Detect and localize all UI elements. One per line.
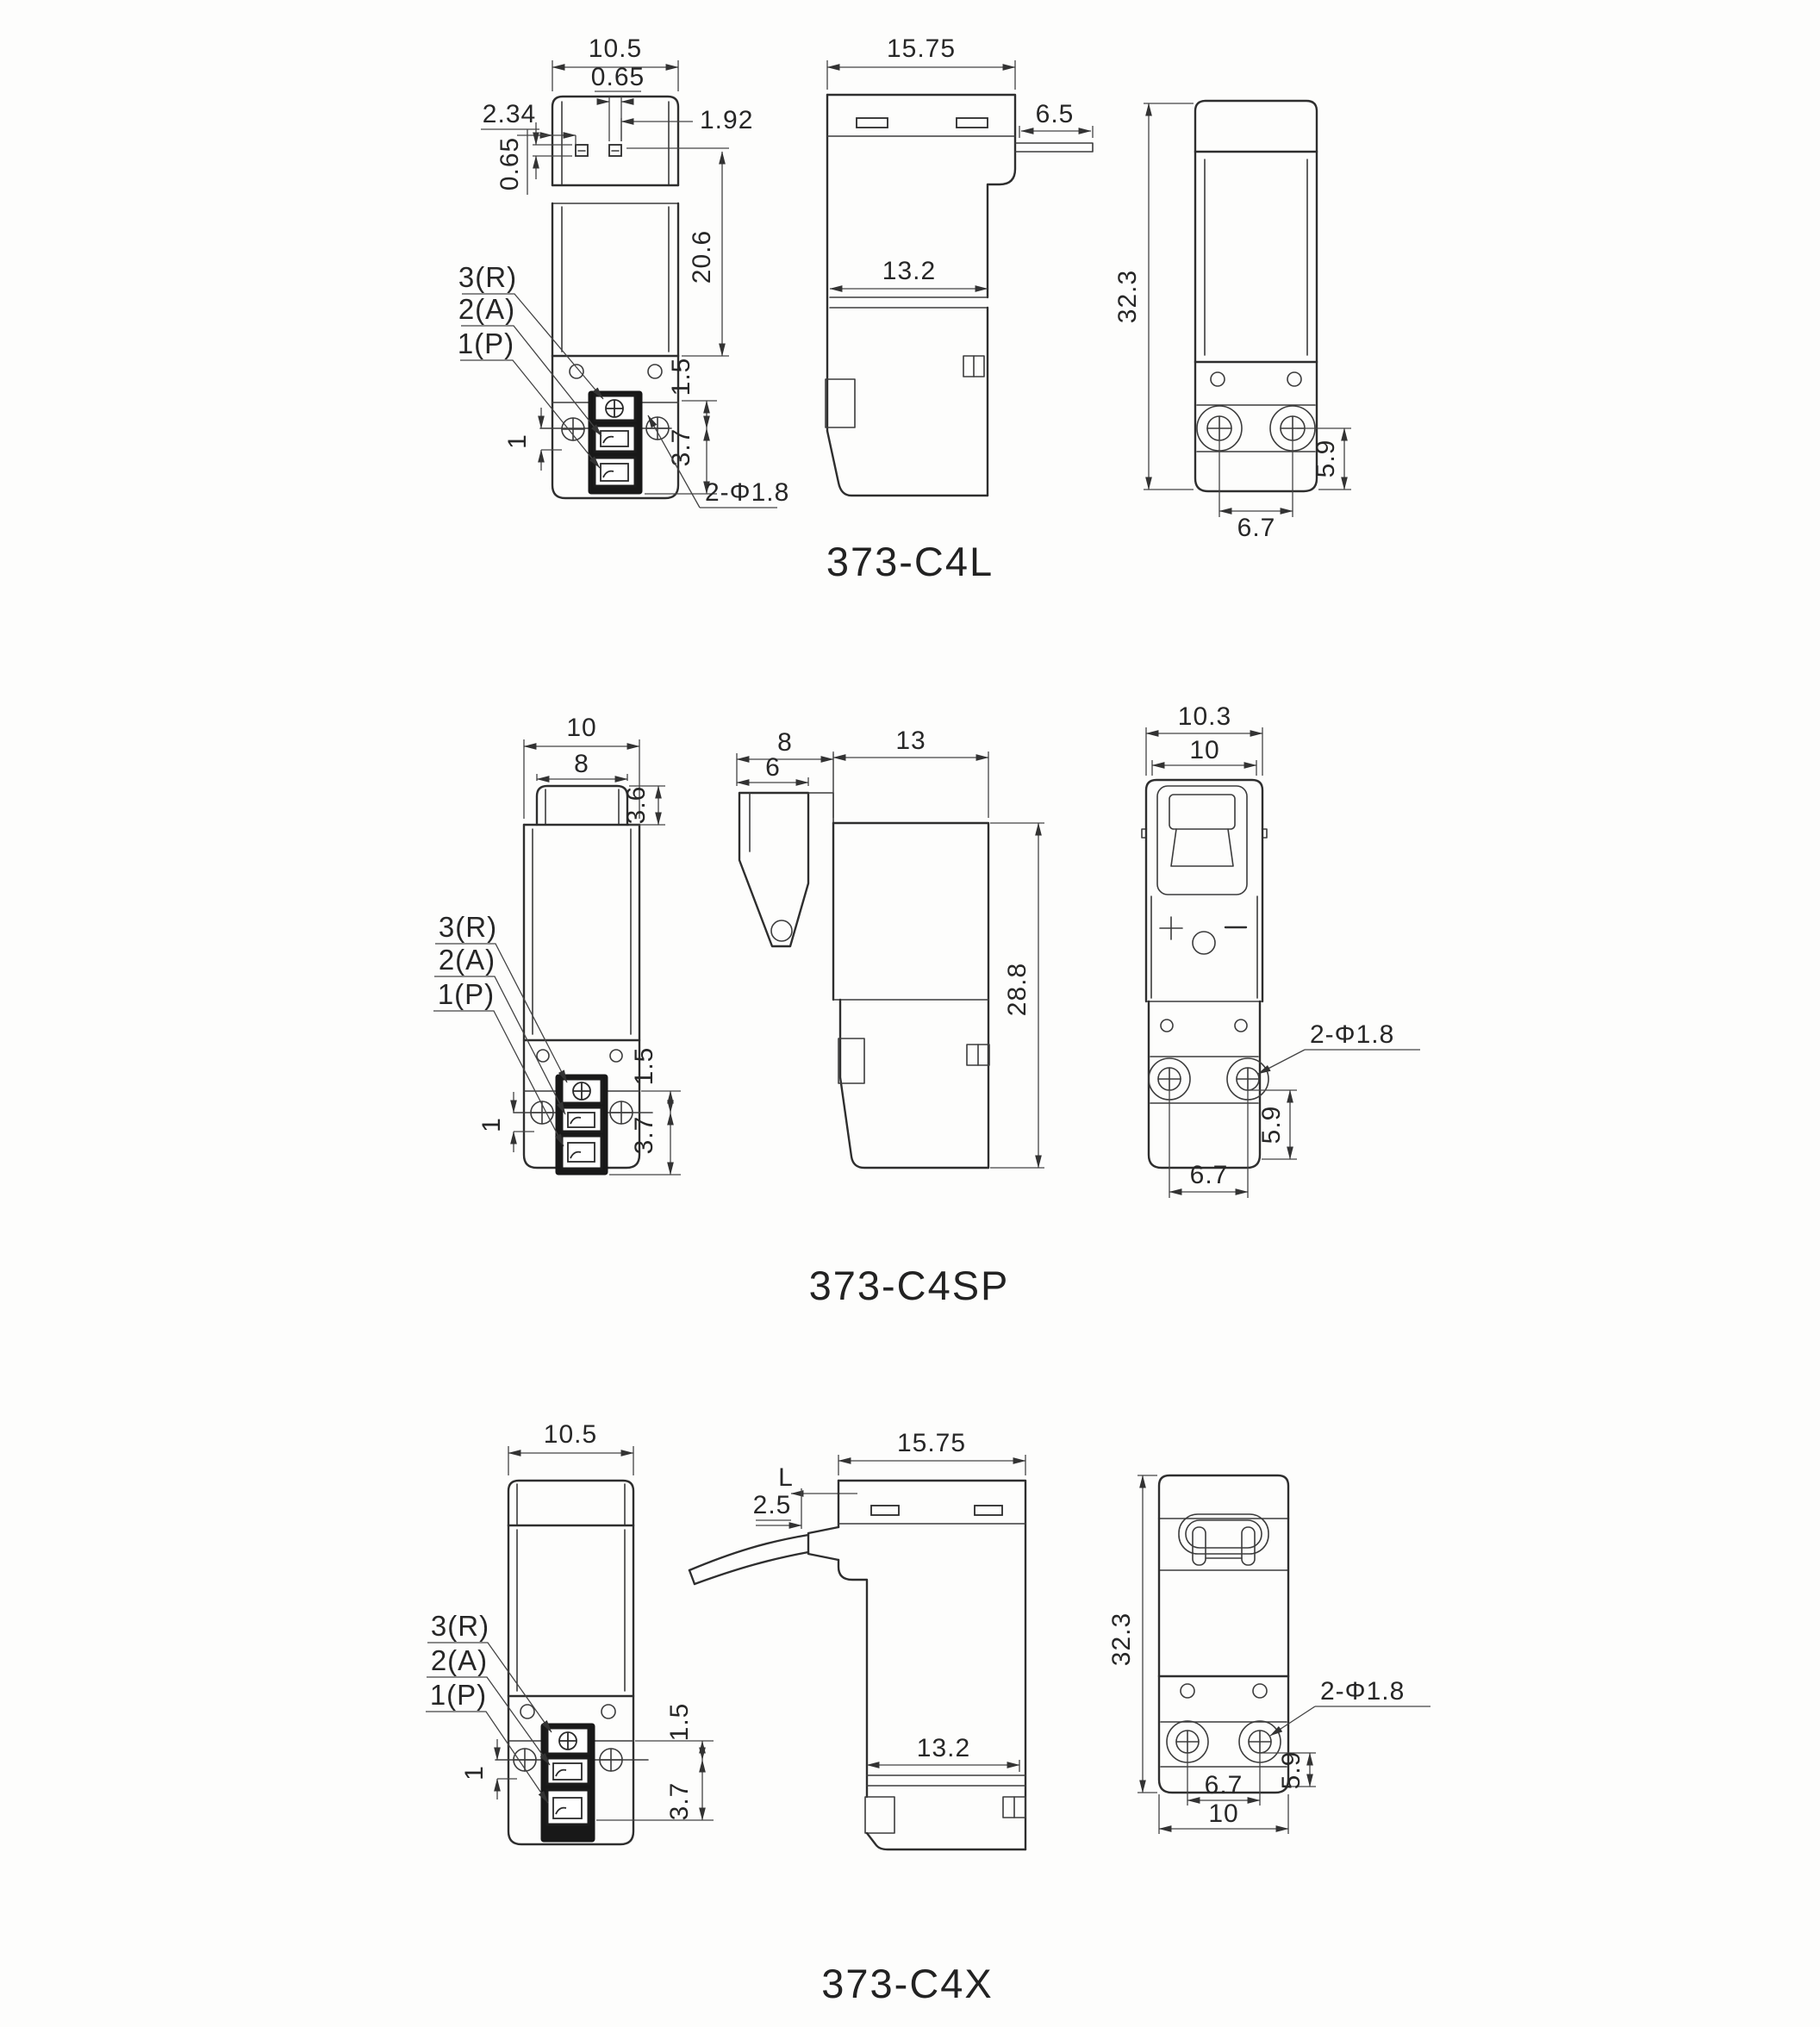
c4x-rear-hole-right bbox=[1249, 1731, 1271, 1753]
dim-c4x-hole-y: 5.9 bbox=[1277, 1751, 1306, 1790]
c4x-mount-hole-symbol-right bbox=[600, 1749, 622, 1771]
dim-c4x-cable-length: L bbox=[778, 1463, 794, 1492]
dim-c4x-block-height: 3.7 bbox=[665, 1782, 694, 1821]
dim-c4sp-cap-width: 8 bbox=[574, 750, 589, 778]
c4sp-rear-hole-right bbox=[1237, 1068, 1259, 1090]
dim-c4x-lower-width: 13.2 bbox=[917, 1734, 970, 1762]
dim-c4l-tab-length: 6.5 bbox=[1036, 100, 1075, 128]
figure-373-c4l: 10.5 0.65 2.34 1.92 0.65 20.6 1.5 bbox=[458, 34, 1351, 584]
dim-c4l-front-width: 10.5 bbox=[589, 34, 642, 63]
dim-c4sp-ear-offset: 1 bbox=[477, 1117, 506, 1132]
note-c4l-holes: 2-Φ1.8 bbox=[705, 478, 789, 507]
c4l-front-view: 10.5 0.65 2.34 1.92 0.65 20.6 1.5 bbox=[458, 34, 790, 508]
dim-c4x-front-width: 10.5 bbox=[544, 1420, 597, 1449]
dim-c4l-port-width: 0.65 bbox=[591, 63, 645, 91]
port-label-1p: 1(P) bbox=[438, 978, 495, 1010]
dim-c4sp-cap-height: 3.6 bbox=[622, 786, 651, 825]
figure-373-c4sp: 10 8 3.6 bbox=[433, 702, 1420, 1308]
dim-c4l-port-right-offset: 1.92 bbox=[700, 106, 753, 134]
dim-c4x-cable-offset: 2.5 bbox=[753, 1491, 792, 1519]
dim-c4l-side-width: 15.75 bbox=[887, 34, 956, 63]
figure-title-c4sp: 373-C4SP bbox=[809, 1263, 1010, 1308]
dim-c4l-port-left-offset: 2.34 bbox=[483, 100, 536, 128]
dim-c4l-hole-span: 6.7 bbox=[1237, 514, 1276, 542]
c4sp-indicator-symbols bbox=[1160, 917, 1246, 954]
dim-c4sp-cap-face: 6 bbox=[765, 753, 781, 782]
dim-c4l-body-height: 20.6 bbox=[688, 230, 716, 284]
dim-c4l-lower-width: 13.2 bbox=[882, 257, 936, 285]
c4x-front-view: 10.5 bbox=[426, 1420, 714, 1844]
port-label-2a: 2(A) bbox=[431, 1644, 488, 1676]
figure-title-c4x: 373-C4X bbox=[821, 1961, 994, 2006]
port-label-3r: 3(R) bbox=[439, 911, 497, 943]
dim-c4x-height: 32.3 bbox=[1107, 1612, 1136, 1666]
c4sp-rear-view: 10.3 10 bbox=[1142, 702, 1420, 1198]
c4x-side-view: 15.75 L 2.5 13.2 bbox=[689, 1429, 1025, 1849]
figure-title-c4l: 373-C4L bbox=[826, 539, 994, 584]
dim-c4sp-front-width: 10 bbox=[566, 714, 596, 742]
dim-c4l-ear-offset: 1 bbox=[503, 433, 532, 449]
dim-c4l-port-top-offset: 0.65 bbox=[496, 137, 524, 190]
c4sp-latch bbox=[1157, 786, 1247, 895]
c4l-mount-hole-symbol-left bbox=[562, 418, 584, 440]
c4l-rear-view: 32.3 5.9 6.7 bbox=[1113, 101, 1351, 542]
note-c4x-holes: 2-Φ1.8 bbox=[1320, 1677, 1405, 1706]
dim-c4l-hole-y: 5.9 bbox=[1312, 440, 1340, 478]
note-c4sp-holes: 2-Φ1.8 bbox=[1310, 1020, 1394, 1049]
c4sp-front-view: 10 8 3.6 bbox=[433, 714, 681, 1175]
c4x-rear-view: 32.3 bbox=[1107, 1475, 1430, 1834]
c4x-cable bbox=[689, 1527, 838, 1584]
port-label-1p: 1(P) bbox=[458, 327, 514, 359]
c4sp-side-view: 8 6 13 28.8 bbox=[737, 727, 1044, 1168]
c4l-port-block bbox=[589, 391, 642, 494]
port-label-3r: 3(R) bbox=[431, 1610, 489, 1642]
port-label-2a: 2(A) bbox=[458, 293, 515, 325]
c4sp-port-block bbox=[556, 1075, 608, 1175]
c4l-side-view: 15.75 6.5 13.2 bbox=[826, 34, 1093, 496]
dim-c4x-side-width: 15.75 bbox=[897, 1429, 966, 1457]
dim-c4x-flange: 1.5 bbox=[665, 1703, 694, 1742]
c4x-rear-hole-left bbox=[1176, 1731, 1199, 1753]
dim-c4x-width: 10 bbox=[1208, 1799, 1238, 1828]
port-label-2a: 2(A) bbox=[439, 944, 496, 976]
dim-c4sp-height: 28.8 bbox=[1003, 963, 1032, 1016]
dim-c4sp-body-width: 13 bbox=[895, 727, 926, 755]
dim-c4sp-block-height: 3.7 bbox=[630, 1116, 658, 1155]
port-label-1p: 1(P) bbox=[430, 1679, 487, 1711]
dim-c4sp-hole-span: 6.7 bbox=[1190, 1161, 1229, 1189]
c4x-gland-slot bbox=[1179, 1514, 1268, 1565]
port-label-3r: 3(R) bbox=[458, 261, 517, 293]
drawing-page: 10.5 0.65 2.34 1.92 0.65 20.6 1.5 bbox=[0, 0, 1820, 2027]
c4x-port-block bbox=[541, 1724, 595, 1842]
dim-c4l-block-height: 3.7 bbox=[667, 428, 695, 467]
dim-c4sp-width-outer: 10.3 bbox=[1178, 702, 1231, 731]
dim-c4sp-flange: 1.5 bbox=[630, 1047, 658, 1086]
figure-373-c4x: 10.5 bbox=[426, 1420, 1430, 2006]
c4sp-rear-hole-left bbox=[1158, 1068, 1181, 1090]
c4l-mount-hole-symbol-right bbox=[646, 417, 669, 440]
dim-c4l-height: 32.3 bbox=[1113, 270, 1142, 323]
technical-drawing: 10.5 0.65 2.34 1.92 0.65 20.6 1.5 bbox=[0, 0, 1820, 2027]
dim-c4sp-hole-y: 5.9 bbox=[1257, 1106, 1286, 1144]
dim-c4x-ear-offset: 1 bbox=[460, 1765, 489, 1781]
dim-c4l-flange: 1.5 bbox=[667, 358, 695, 396]
dim-c4sp-width: 10 bbox=[1189, 736, 1219, 764]
c4l-rear-hole-left bbox=[1207, 416, 1231, 440]
dim-c4x-hole-span: 6.7 bbox=[1205, 1771, 1243, 1799]
